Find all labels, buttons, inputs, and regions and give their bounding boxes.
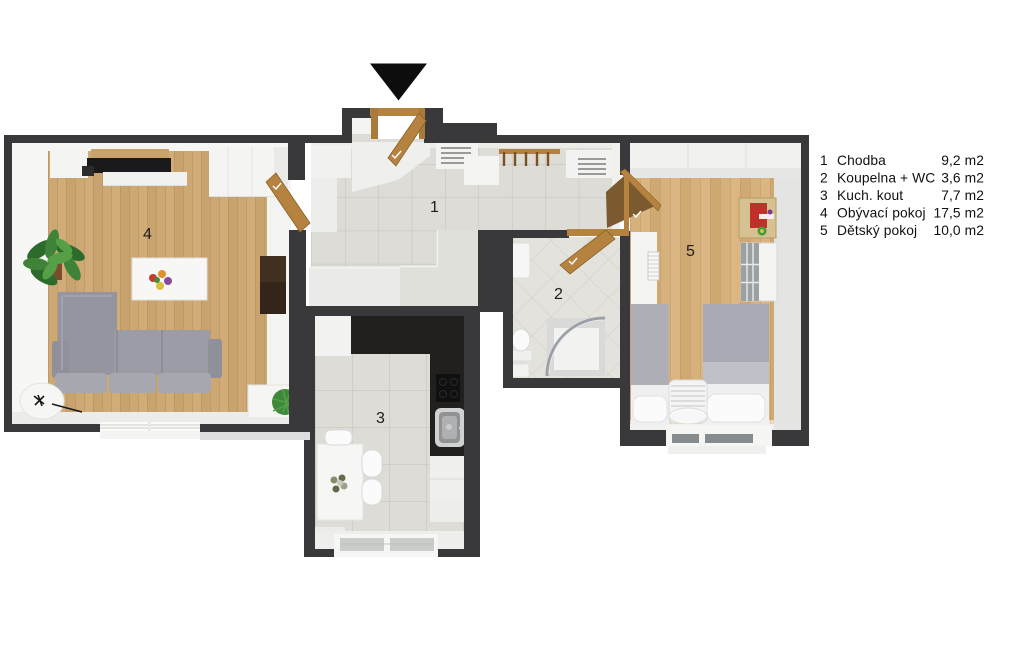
svg-text:Kuch. kout: Kuch. kout bbox=[837, 188, 903, 203]
svg-text:5: 5 bbox=[820, 223, 828, 238]
svg-text:2: 2 bbox=[820, 171, 828, 186]
svg-text:4: 4 bbox=[820, 206, 828, 221]
svg-text:Koupelna + WC: Koupelna + WC bbox=[837, 171, 935, 186]
svg-text:2: 2 bbox=[554, 286, 563, 303]
svg-text:3: 3 bbox=[376, 410, 385, 427]
svg-text:3,6 m2: 3,6 m2 bbox=[941, 171, 984, 186]
svg-text:7,7 m2: 7,7 m2 bbox=[941, 188, 984, 203]
svg-text:9,2 m2: 9,2 m2 bbox=[941, 153, 984, 168]
svg-text:1: 1 bbox=[820, 153, 828, 168]
svg-text:3: 3 bbox=[820, 188, 828, 203]
svg-text:Chodba: Chodba bbox=[837, 153, 886, 168]
svg-text:4: 4 bbox=[143, 226, 152, 243]
svg-text:1: 1 bbox=[430, 199, 439, 216]
svg-text:Dětský pokoj: Dětský pokoj bbox=[837, 223, 917, 238]
svg-text:17,5 m2: 17,5 m2 bbox=[933, 206, 984, 221]
svg-text:5: 5 bbox=[686, 243, 695, 260]
svg-text:10,0 m2: 10,0 m2 bbox=[933, 223, 984, 238]
svg-text:Obývací pokoj: Obývací pokoj bbox=[837, 206, 926, 221]
